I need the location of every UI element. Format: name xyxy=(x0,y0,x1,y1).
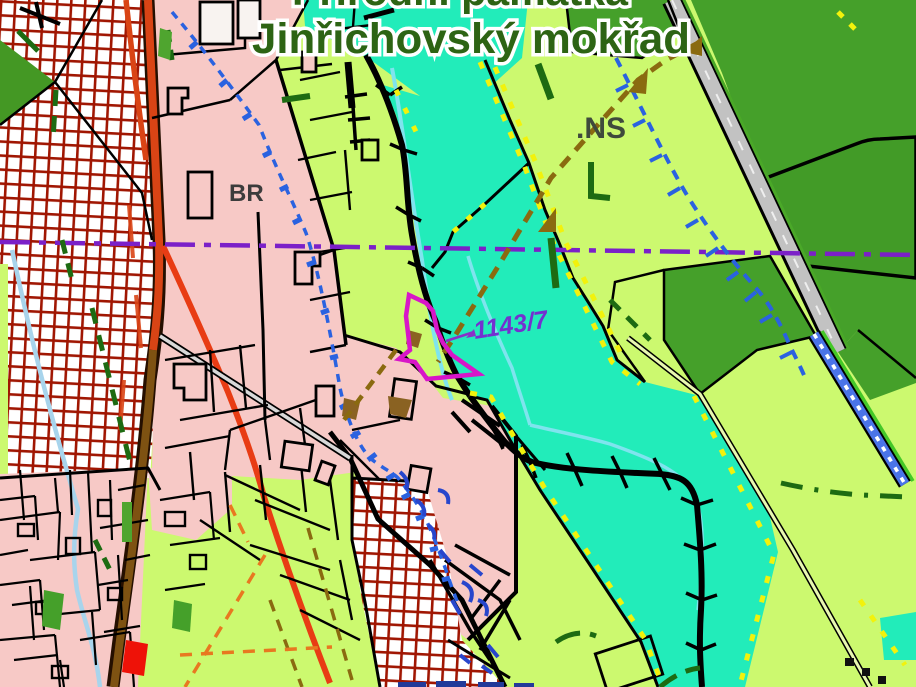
svg-text:Přírodní památka: Přírodní památka xyxy=(292,0,629,15)
svg-text:Jinřichovský mokřad: Jinřichovský mokřad xyxy=(252,15,690,63)
svg-text:.NS: .NS xyxy=(576,112,626,145)
svg-text:BR: BR xyxy=(229,180,264,207)
